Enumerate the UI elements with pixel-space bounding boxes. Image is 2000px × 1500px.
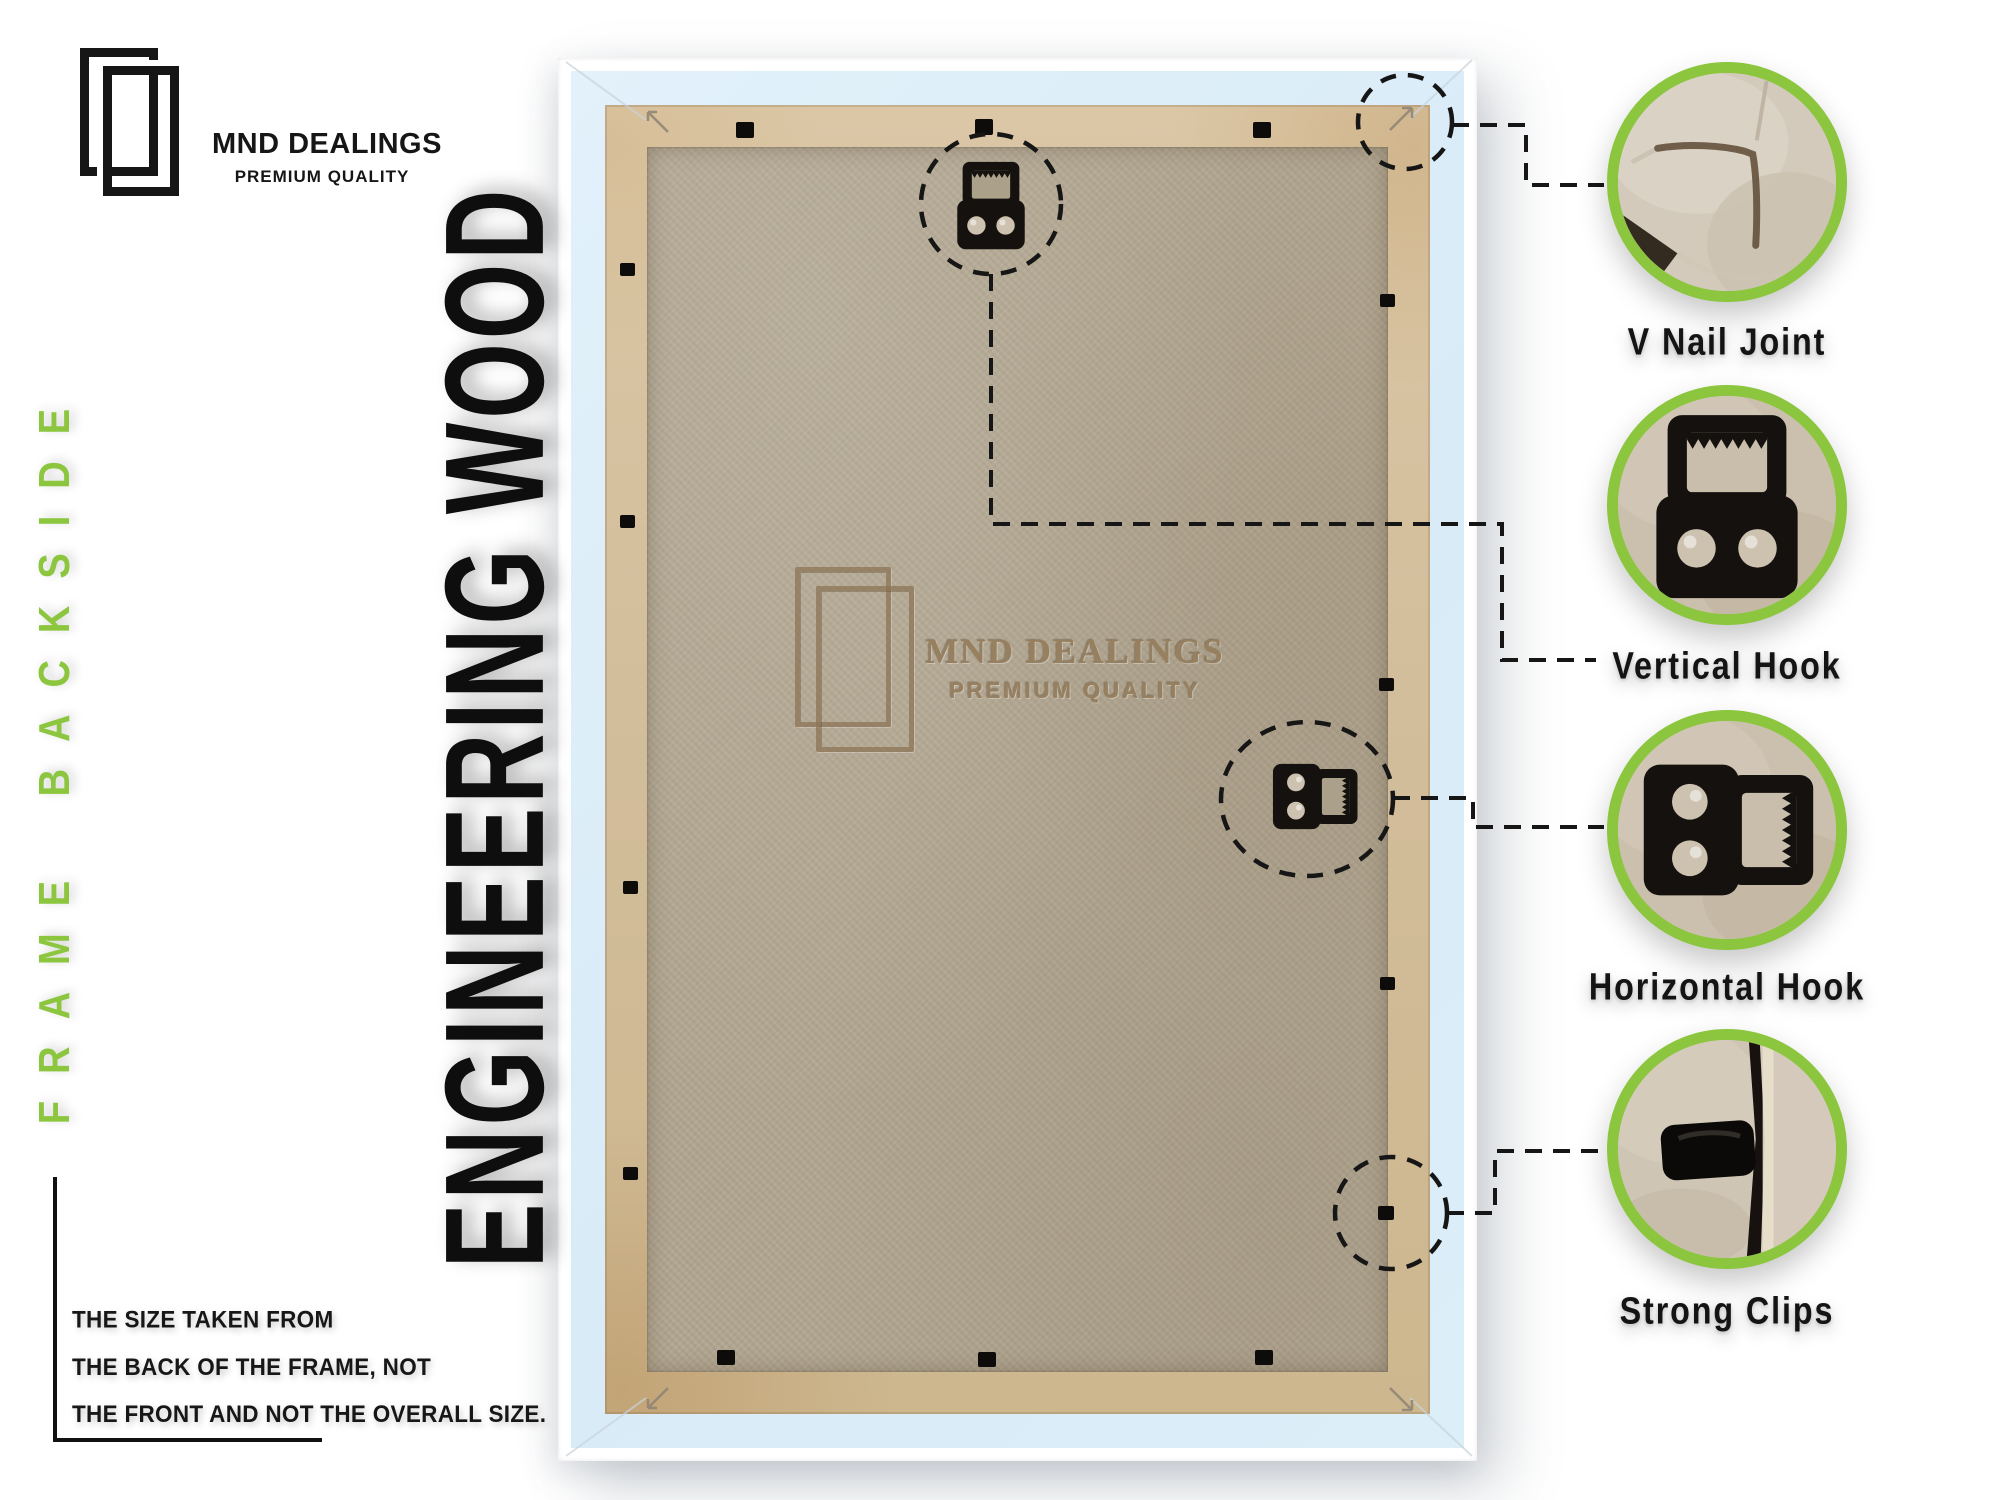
callout-vertical-hook: [1607, 385, 1847, 625]
callout-label-vertical-hook: Vertical Hook: [1556, 645, 1898, 689]
size-note-line: THE SIZE TAKEN FROM: [72, 1296, 502, 1343]
frame-backside-banner: FRAME BACKSIDE: [15, 373, 96, 1133]
watermark-frame-icon: [816, 586, 914, 752]
callout-label-strong-clips: Strong Clips: [1556, 1290, 1898, 1334]
brand-tagline: PREMIUM QUALITY: [212, 167, 432, 187]
brand-logo-frame-icon: [103, 66, 179, 196]
v-nail-joint-photo-icon: [1618, 73, 1836, 291]
callout-strong-clips: [1607, 1029, 1847, 1269]
callout-label-v-nail-joint: V Nail Joint: [1556, 321, 1898, 365]
size-note: THE SIZE TAKEN FROM THE BACK OF THE FRAM…: [72, 1296, 502, 1438]
callout-v-nail-joint: [1607, 62, 1847, 302]
horizontal-hook-icon: [1261, 752, 1365, 841]
callout-horizontal-hook: [1607, 710, 1847, 950]
size-note-line: THE BACK OF THE FRAME, NOT: [72, 1343, 502, 1390]
watermark-brand-name: MND DEALINGS: [925, 632, 1225, 672]
brand-name: MND DEALINGS: [212, 128, 432, 161]
brand-logo: MND DEALINGS PREMIUM QUALITY: [212, 128, 432, 187]
engineering-wood-banner: ENGINEERING WOOD: [386, 177, 604, 1277]
watermark: MND DEALINGS PREMIUM QUALITY: [925, 632, 1225, 704]
strong-clips-photo-icon: [1618, 1040, 1836, 1258]
vertical-hook-photo-icon: [1618, 396, 1836, 614]
vertical-hook-icon: [945, 154, 1037, 254]
callout-label-horizontal-hook: Horizontal Hook: [1556, 966, 1898, 1010]
horizontal-hook-photo-icon: [1618, 721, 1836, 939]
watermark-tagline: PREMIUM QUALITY: [925, 678, 1225, 704]
size-note-line: THE FRONT AND NOT THE OVERALL SIZE.: [72, 1391, 502, 1438]
